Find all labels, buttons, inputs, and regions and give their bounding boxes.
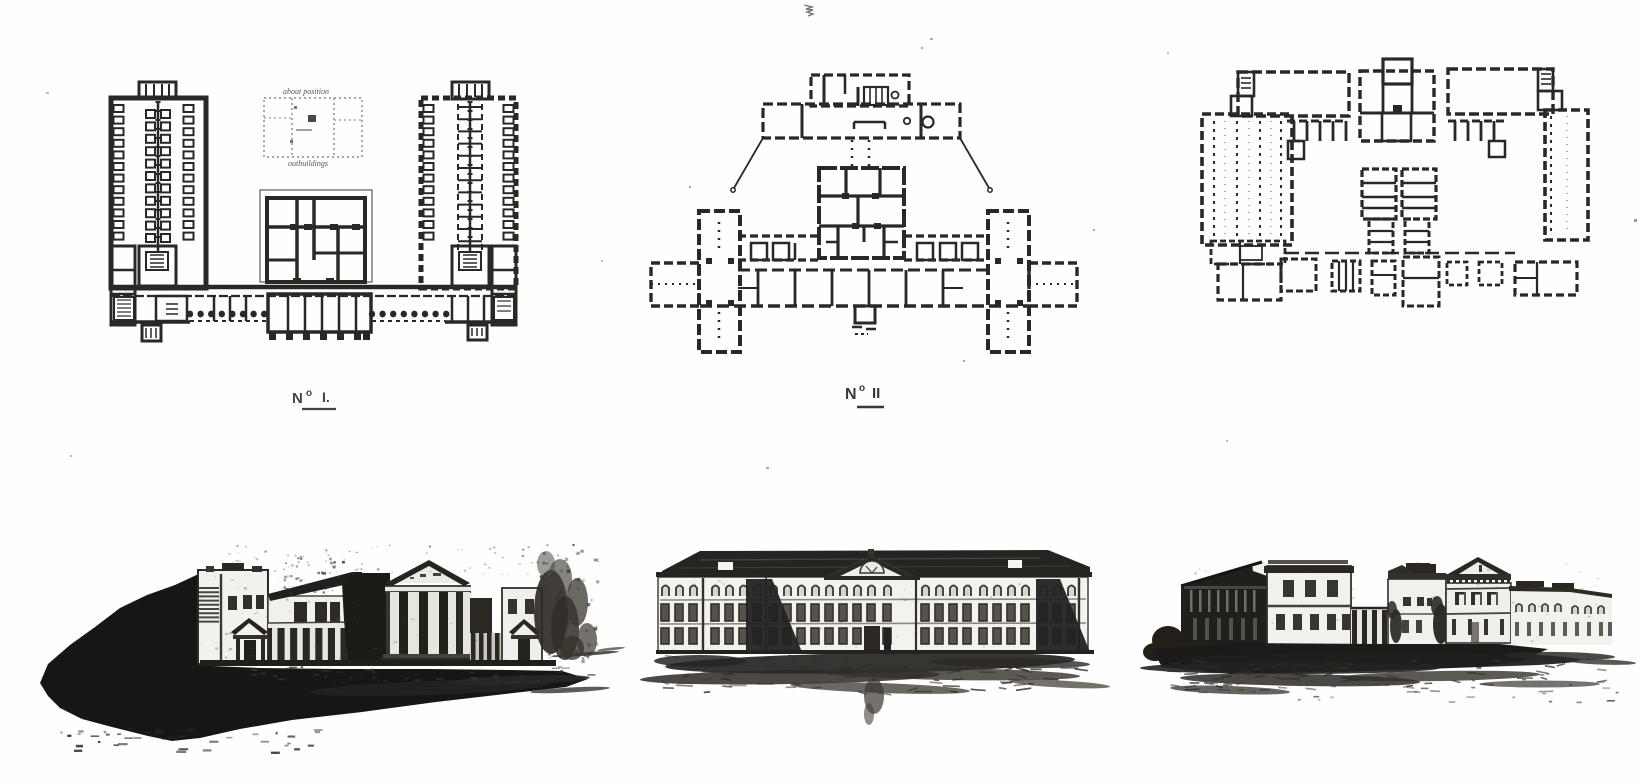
svg-text:about position: about position (283, 87, 329, 96)
svg-text:N: N (845, 386, 859, 403)
svg-text:o: o (306, 388, 312, 399)
svg-text:outbuildings: outbuildings (288, 159, 328, 168)
svg-text:I.: I. (322, 389, 330, 405)
svg-text:N: N (292, 390, 305, 407)
svg-text:II: II (872, 385, 880, 402)
svg-text:o: o (859, 383, 865, 394)
